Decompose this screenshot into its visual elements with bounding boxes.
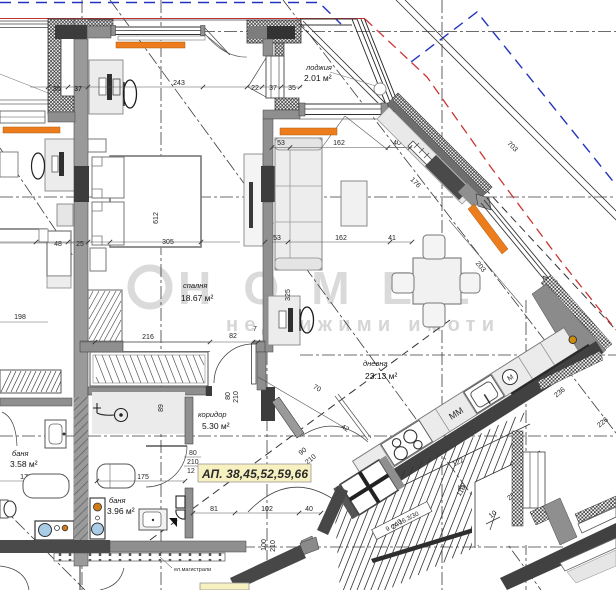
svg-text:210: 210 xyxy=(270,540,277,552)
svg-text:7: 7 xyxy=(253,326,257,333)
svg-text:53: 53 xyxy=(273,235,281,242)
svg-text:12: 12 xyxy=(187,468,195,475)
svg-text:41: 41 xyxy=(388,235,396,242)
svg-text:216: 216 xyxy=(142,334,154,341)
svg-text:243: 243 xyxy=(173,80,185,87)
svg-text:2.01 м²: 2.01 м² xyxy=(304,73,332,83)
svg-text:25: 25 xyxy=(76,241,84,248)
svg-text:ел.магистрали: ел.магистрали xyxy=(174,567,211,573)
svg-text:35: 35 xyxy=(288,85,296,92)
svg-text:37: 37 xyxy=(269,85,277,92)
svg-text:162: 162 xyxy=(335,235,347,242)
svg-text:22: 22 xyxy=(251,85,259,92)
svg-text:40: 40 xyxy=(305,506,313,513)
svg-text:3.58 м²: 3.58 м² xyxy=(10,459,38,469)
svg-text:325: 325 xyxy=(285,289,292,301)
svg-text:53: 53 xyxy=(277,140,285,147)
svg-text:81: 81 xyxy=(210,506,218,513)
svg-text:305: 305 xyxy=(162,239,174,246)
svg-text:210: 210 xyxy=(233,391,240,403)
svg-text:82: 82 xyxy=(229,333,237,340)
svg-text:дневна: дневна xyxy=(363,359,388,368)
svg-text:175: 175 xyxy=(137,474,149,481)
svg-text:баня: баня xyxy=(12,449,29,458)
svg-text:23.13 м²: 23.13 м² xyxy=(365,371,397,381)
svg-text:5.30 м²: 5.30 м² xyxy=(202,421,230,431)
svg-text:102: 102 xyxy=(261,506,273,513)
svg-text:3.96 м²: 3.96 м² xyxy=(107,506,135,516)
svg-text:80: 80 xyxy=(225,392,232,400)
svg-text:100: 100 xyxy=(261,539,268,551)
svg-text:спалня: спалня xyxy=(183,281,207,290)
svg-text:37: 37 xyxy=(74,86,82,93)
svg-text:лоджия: лоджия xyxy=(305,63,332,72)
svg-text:210: 210 xyxy=(187,459,199,466)
svg-text:баня: баня xyxy=(109,496,126,505)
svg-text:89: 89 xyxy=(158,404,165,412)
svg-text:162: 162 xyxy=(333,140,345,147)
svg-text:АП. 38,45,52,59,66: АП. 38,45,52,59,66 xyxy=(201,467,308,481)
svg-text:18.67 м²: 18.67 м² xyxy=(181,293,213,303)
svg-text:80: 80 xyxy=(189,450,197,457)
svg-text:198: 198 xyxy=(14,314,26,321)
svg-text:35: 35 xyxy=(53,86,61,93)
svg-text:612: 612 xyxy=(153,212,160,224)
svg-text:коридор: коридор xyxy=(198,410,227,419)
